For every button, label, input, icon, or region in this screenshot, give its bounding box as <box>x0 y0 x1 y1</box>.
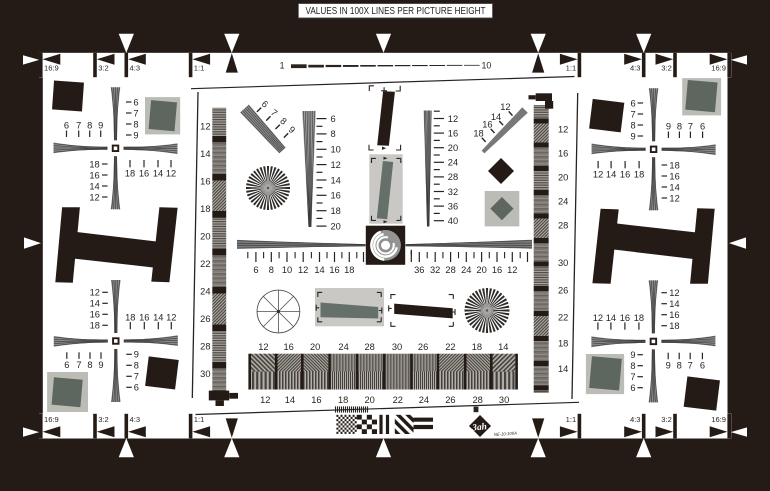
svg-text:3:2: 3:2 <box>98 415 109 424</box>
svg-text:14: 14 <box>200 149 210 159</box>
svg-text:1: 1 <box>280 61 285 71</box>
svg-text:12: 12 <box>166 169 176 179</box>
svg-text:26: 26 <box>445 395 455 405</box>
svg-text:18: 18 <box>125 312 135 322</box>
svg-text:7: 7 <box>630 372 635 382</box>
svg-text:12: 12 <box>89 192 99 202</box>
svg-text:6: 6 <box>331 114 336 124</box>
svg-text:20: 20 <box>448 143 458 153</box>
svg-text:18: 18 <box>90 321 100 331</box>
svg-text:14: 14 <box>669 299 679 309</box>
svg-text:12: 12 <box>200 121 210 131</box>
svg-text:16: 16 <box>482 120 492 130</box>
svg-text:4:3: 4:3 <box>630 64 641 73</box>
svg-text:3:2: 3:2 <box>98 64 109 73</box>
svg-text:16: 16 <box>329 265 339 275</box>
svg-text:4:3: 4:3 <box>130 415 141 424</box>
svg-text:26: 26 <box>418 342 428 352</box>
svg-text:18: 18 <box>558 339 568 349</box>
svg-text:24: 24 <box>338 342 348 352</box>
svg-text:14: 14 <box>153 169 163 179</box>
svg-text:14: 14 <box>89 181 99 191</box>
svg-text:36: 36 <box>414 265 424 275</box>
svg-text:18: 18 <box>338 395 348 405</box>
svg-text:20: 20 <box>558 173 568 183</box>
svg-text:8: 8 <box>630 361 635 371</box>
svg-text:8: 8 <box>133 119 138 129</box>
svg-text:28: 28 <box>558 221 568 231</box>
svg-text:16: 16 <box>90 310 100 320</box>
svg-text:16: 16 <box>331 191 341 201</box>
svg-text:8: 8 <box>134 361 139 371</box>
svg-text:28: 28 <box>473 395 483 405</box>
svg-text:14: 14 <box>331 175 341 185</box>
svg-text:40: 40 <box>448 216 458 226</box>
svg-text:12: 12 <box>90 288 100 298</box>
svg-text:3:2: 3:2 <box>661 415 672 424</box>
svg-text:9: 9 <box>631 131 636 141</box>
svg-text:12: 12 <box>507 265 517 275</box>
svg-text:24: 24 <box>200 286 210 296</box>
svg-text:12: 12 <box>669 288 679 298</box>
svg-text:12: 12 <box>260 395 270 405</box>
svg-text:12: 12 <box>258 342 268 352</box>
svg-text:1:1: 1:1 <box>566 415 577 424</box>
svg-text:1:1: 1:1 <box>566 64 577 73</box>
svg-text:8: 8 <box>677 121 682 131</box>
svg-text:18: 18 <box>634 313 644 323</box>
svg-text:16: 16 <box>139 312 149 322</box>
svg-text:30: 30 <box>200 369 210 379</box>
svg-text:14: 14 <box>153 312 163 322</box>
svg-text:28: 28 <box>448 172 458 182</box>
svg-text:12: 12 <box>593 313 603 323</box>
svg-text:7: 7 <box>133 108 138 118</box>
svg-text:10: 10 <box>331 145 341 155</box>
svg-text:10: 10 <box>282 265 292 275</box>
svg-text:3ah: 3ah <box>471 422 488 434</box>
svg-text:24: 24 <box>448 158 458 168</box>
svg-text:16: 16 <box>669 171 679 181</box>
svg-text:18: 18 <box>472 342 482 352</box>
svg-text:32: 32 <box>430 265 440 275</box>
svg-text:22: 22 <box>445 342 455 352</box>
svg-text:12: 12 <box>448 114 458 124</box>
svg-text:14: 14 <box>558 364 568 374</box>
svg-text:32: 32 <box>448 187 458 197</box>
svg-text:18: 18 <box>200 204 210 214</box>
svg-text:9: 9 <box>98 360 103 370</box>
svg-text:24: 24 <box>419 395 429 405</box>
svg-text:7: 7 <box>688 360 693 370</box>
svg-text:8: 8 <box>331 129 336 139</box>
svg-text:9: 9 <box>133 130 138 140</box>
svg-text:26: 26 <box>558 285 568 295</box>
svg-text:16: 16 <box>558 149 568 159</box>
svg-text:4:3: 4:3 <box>630 415 641 424</box>
svg-text:16: 16 <box>669 310 679 320</box>
svg-text:VALUES IN 100X LINES PER PICTU: VALUES IN 100X LINES PER PICTURE HEIGHT <box>306 6 486 17</box>
svg-text:18: 18 <box>89 159 99 169</box>
svg-text:8: 8 <box>677 360 682 370</box>
svg-text:28: 28 <box>200 341 210 351</box>
svg-text:9: 9 <box>98 120 103 130</box>
svg-text:12: 12 <box>166 312 176 322</box>
svg-text:8: 8 <box>631 120 636 130</box>
svg-text:16:9: 16:9 <box>44 415 59 424</box>
svg-text:8: 8 <box>87 120 92 130</box>
svg-text:22: 22 <box>558 313 568 323</box>
svg-text:9: 9 <box>134 350 139 360</box>
svg-text:16: 16 <box>200 176 210 186</box>
svg-text:8: 8 <box>87 360 92 370</box>
svg-text:36: 36 <box>448 201 458 211</box>
svg-text:24: 24 <box>461 265 471 275</box>
svg-text:16: 16 <box>139 169 149 179</box>
svg-text:6: 6 <box>630 383 635 393</box>
svg-text:14: 14 <box>314 265 324 275</box>
svg-text:16: 16 <box>492 265 502 275</box>
svg-text:1:1: 1:1 <box>194 64 205 73</box>
svg-text:6: 6 <box>700 121 705 131</box>
svg-text:24: 24 <box>558 197 568 207</box>
svg-text:12: 12 <box>331 160 341 170</box>
svg-text:16: 16 <box>311 395 321 405</box>
svg-text:30: 30 <box>499 395 509 405</box>
svg-text:7: 7 <box>631 109 636 119</box>
svg-text:3:2: 3:2 <box>661 64 672 73</box>
svg-text:20: 20 <box>331 221 341 231</box>
svg-text:12: 12 <box>558 125 568 135</box>
svg-text:6: 6 <box>700 360 705 370</box>
svg-text:12: 12 <box>500 102 510 112</box>
svg-text:16:9: 16:9 <box>44 64 59 73</box>
svg-text:7: 7 <box>134 372 139 382</box>
svg-text:16:9: 16:9 <box>711 64 726 73</box>
svg-text:18: 18 <box>634 170 644 180</box>
svg-text:14: 14 <box>606 313 616 323</box>
svg-text:20: 20 <box>365 395 375 405</box>
svg-text:7: 7 <box>76 360 81 370</box>
svg-text:16: 16 <box>284 342 294 352</box>
svg-text:14: 14 <box>498 342 508 352</box>
svg-text:16: 16 <box>448 128 458 138</box>
svg-text:18: 18 <box>669 321 679 331</box>
svg-text:12: 12 <box>298 265 308 275</box>
svg-text:18: 18 <box>125 169 135 179</box>
svg-text:20: 20 <box>200 231 210 241</box>
svg-text:6: 6 <box>134 383 139 393</box>
svg-text:28: 28 <box>365 342 375 352</box>
svg-text:8: 8 <box>269 265 274 275</box>
svg-text:18: 18 <box>331 206 341 216</box>
svg-text:16: 16 <box>89 170 99 180</box>
svg-text:14: 14 <box>606 170 616 180</box>
svg-text:16:9: 16:9 <box>711 415 726 424</box>
svg-text:18: 18 <box>473 129 483 139</box>
svg-text:30: 30 <box>558 258 568 268</box>
svg-text:30: 30 <box>392 342 402 352</box>
svg-text:14: 14 <box>90 299 100 309</box>
svg-text:7: 7 <box>688 121 693 131</box>
svg-text:4:3: 4:3 <box>130 64 141 73</box>
svg-text:20: 20 <box>310 342 320 352</box>
svg-text:18: 18 <box>344 265 354 275</box>
svg-text:18: 18 <box>669 160 679 170</box>
svg-text:22: 22 <box>200 259 210 269</box>
svg-text:9: 9 <box>630 350 635 360</box>
svg-text:16: 16 <box>620 313 630 323</box>
svg-text:6: 6 <box>253 265 258 275</box>
svg-text:16: 16 <box>620 170 630 180</box>
svg-text:6: 6 <box>64 120 69 130</box>
svg-text:6: 6 <box>64 360 69 370</box>
svg-text:10: 10 <box>482 61 492 71</box>
svg-text:14: 14 <box>285 395 295 405</box>
svg-text:26: 26 <box>200 314 210 324</box>
svg-text:1:1: 1:1 <box>194 415 205 424</box>
svg-text:14: 14 <box>669 182 679 192</box>
svg-text:6: 6 <box>133 97 138 107</box>
svg-text:28: 28 <box>445 265 455 275</box>
svg-text:7: 7 <box>76 120 81 130</box>
svg-text:20: 20 <box>476 265 486 275</box>
svg-text:9: 9 <box>666 360 671 370</box>
svg-text:9: 9 <box>666 121 671 131</box>
svg-text:12: 12 <box>593 170 603 180</box>
svg-text:6: 6 <box>631 98 636 108</box>
svg-text:22: 22 <box>393 395 403 405</box>
svg-text:12: 12 <box>669 193 679 203</box>
